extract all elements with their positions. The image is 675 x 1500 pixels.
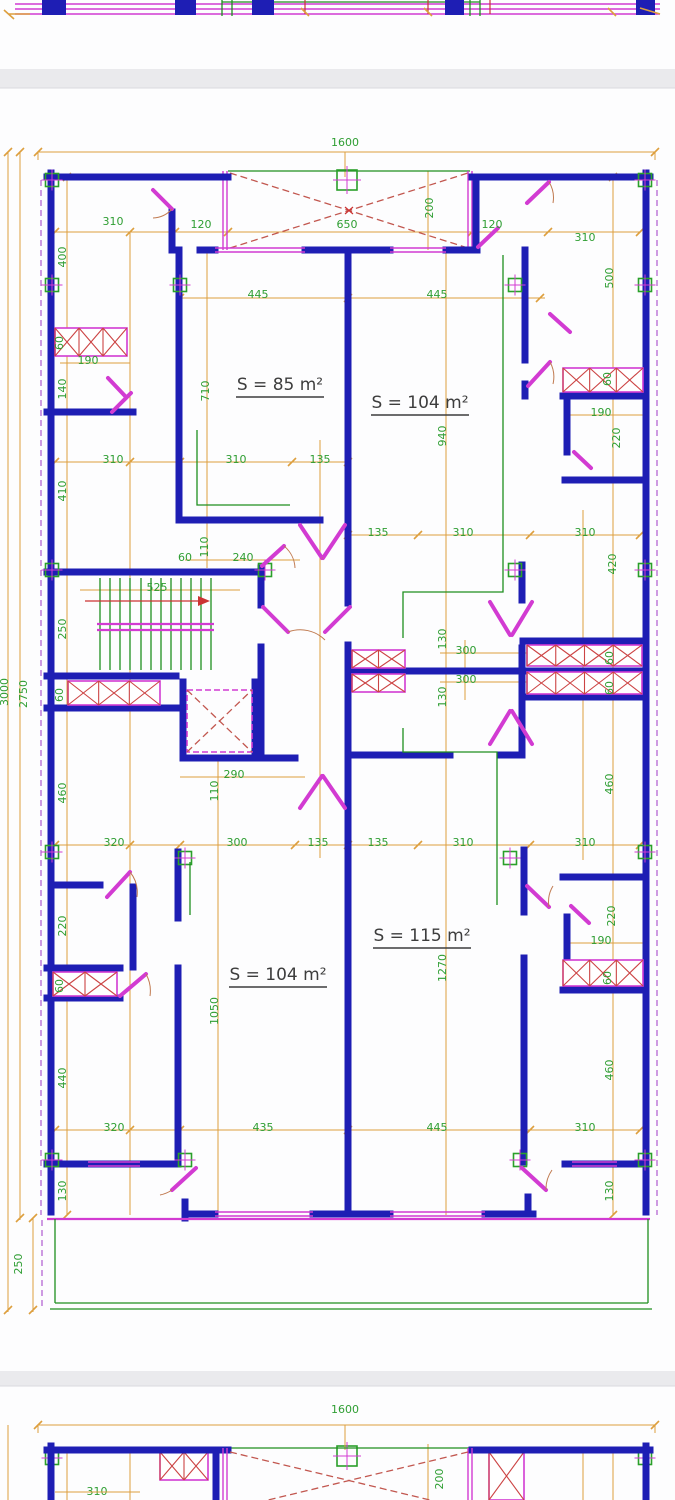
dimension-label: 650 — [337, 218, 358, 231]
dimension-label: 500 — [603, 268, 616, 289]
dimension-label: 60 — [53, 979, 66, 993]
wall-stub — [175, 0, 196, 15]
dimension-label: 310 — [226, 453, 247, 466]
dimension-label: 435 — [253, 1121, 274, 1134]
column-marker — [42, 275, 63, 296]
dimension-label: 60 — [178, 551, 192, 564]
apartment-area-label: S = 115 m² — [373, 926, 470, 946]
dimension-label: 200 — [433, 1469, 446, 1490]
floor-plan-page: 1600310120650200120310400500445445601901… — [0, 0, 675, 1500]
dimension-label: 220 — [56, 916, 69, 937]
wall-stub — [636, 0, 655, 15]
column-marker — [333, 166, 361, 194]
dimension-label: 525 — [147, 581, 168, 594]
dimension-label: 460 — [603, 1060, 616, 1081]
dimension-label: 1600 — [331, 136, 359, 149]
apartment-area-label: S = 85 m² — [237, 375, 323, 395]
dimension-label: 310 — [103, 453, 124, 466]
dimension-label: 445 — [427, 288, 448, 301]
previous-plan-strip — [4, 0, 660, 19]
dimension-label: 710 — [199, 381, 212, 402]
dimension-label: 60 — [53, 336, 66, 350]
section-divider-bottom — [0, 1371, 675, 1386]
floor-plan-drawing: 1600310120650200120310400500445445601901… — [0, 0, 675, 1500]
dimension-label: 310 — [575, 231, 596, 244]
dimension-label: 400 — [56, 247, 69, 268]
dimension-label: 60 — [601, 971, 614, 985]
dimension-label: 200 — [423, 198, 436, 219]
elevator-x — [187, 690, 252, 752]
dimension-label: 130 — [603, 1181, 616, 1202]
elevator-shaft — [187, 690, 252, 752]
vent-shaft — [489, 1452, 524, 1500]
dimension-label: 3000 — [0, 678, 11, 706]
dimension-label: 310 — [453, 526, 474, 539]
dimension-label: 120 — [482, 218, 503, 231]
dimension-label: 420 — [606, 554, 619, 575]
dimension-label: 310 — [103, 215, 124, 228]
column-marker — [42, 170, 63, 191]
dimension-label: 130 — [436, 687, 449, 708]
main-floor-plan: 1600310120650200120310400500445445601901… — [0, 136, 659, 1500]
dimension-label: 250 — [56, 619, 69, 640]
dimension-label: 220 — [610, 428, 623, 449]
wall-stub — [42, 0, 66, 15]
dimension-label: 140 — [56, 379, 69, 400]
column-marker — [635, 275, 656, 296]
dimension-label: 120 — [191, 218, 212, 231]
dimension-label: 460 — [56, 783, 69, 804]
dimension-label: 110 — [208, 781, 221, 802]
dimension-label: 60 — [53, 688, 66, 702]
dimension-label: 310 — [575, 526, 596, 539]
dimension-label: 135 — [310, 453, 331, 466]
dimension-label: 440 — [56, 1068, 69, 1089]
column-marker — [333, 1442, 361, 1470]
section-divider-top — [0, 69, 675, 88]
column-marker — [42, 560, 63, 581]
dimension-label: 240 — [233, 551, 254, 564]
vent-shaft — [352, 650, 405, 668]
dimension-label: 1270 — [436, 954, 449, 982]
vent-shaft — [352, 674, 405, 692]
dimension-label: 135 — [368, 836, 389, 849]
dimension-label: 410 — [56, 481, 69, 502]
vent-shaft — [527, 672, 642, 694]
dimension-label: 300 — [456, 673, 477, 686]
dimension-label: 135 — [368, 526, 389, 539]
apartment-area-label: S = 104 m² — [229, 965, 326, 985]
column-marker — [635, 560, 656, 581]
dimension-label: 320 — [104, 1121, 125, 1134]
dimension-label: 60 — [601, 372, 614, 386]
balcony — [50, 1219, 652, 1309]
dimension-label: 130 — [436, 629, 449, 650]
dimension-label: 190 — [591, 934, 612, 947]
stair-landing — [97, 624, 214, 630]
dimension-label: 110 — [198, 537, 211, 558]
dimension-label: 250 — [12, 1254, 25, 1275]
vent-shaft — [527, 645, 642, 666]
stair-arrow-icon — [198, 596, 210, 606]
dimension-label: 300 — [227, 836, 248, 849]
column-marker — [635, 170, 656, 191]
dimension-label: 310 — [453, 836, 474, 849]
dimension-label: 300 — [456, 644, 477, 657]
dimension-label: 190 — [78, 354, 99, 367]
dimension-label: 290 — [224, 768, 245, 781]
column-marker — [500, 848, 521, 869]
window-sill-lines — [15, 4, 660, 14]
dimension-label: 320 — [104, 836, 125, 849]
dimension-label: 220 — [605, 906, 618, 927]
dimension-label: 1600 — [331, 1403, 359, 1416]
well-center-mark — [345, 207, 353, 214]
wall-stub — [445, 0, 464, 15]
dimension-label: 190 — [591, 406, 612, 419]
dimension-label: 60 — [603, 651, 616, 665]
dimension-label: 460 — [603, 774, 616, 795]
dimension-label: 130 — [56, 1181, 69, 1202]
dimension-label: 2750 — [17, 680, 30, 708]
dimension-label: 940 — [436, 426, 449, 447]
dimension-label: 445 — [248, 288, 269, 301]
wall-stub — [252, 0, 274, 15]
column-marker — [170, 275, 191, 296]
dimension-label: 135 — [308, 836, 329, 849]
dimension-label: 445 — [427, 1121, 448, 1134]
door-swing-arcs — [130, 182, 554, 1195]
vent-shaft — [68, 681, 160, 705]
dimension-label: 1050 — [208, 997, 221, 1025]
dimension-label: 310 — [575, 836, 596, 849]
dimension-label: 310 — [575, 1121, 596, 1134]
apartment-area-label: S = 104 m² — [371, 393, 468, 413]
vent-shaft — [160, 1452, 208, 1480]
dimension-label: 60 — [603, 681, 616, 695]
